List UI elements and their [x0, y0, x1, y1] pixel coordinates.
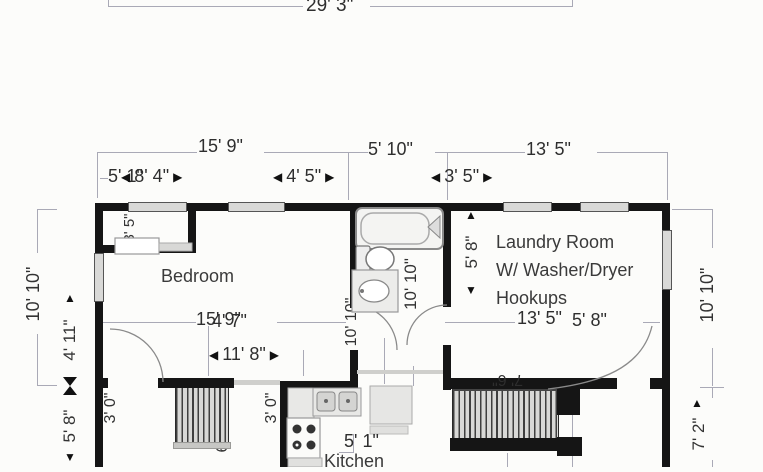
- dim-bedroom-window: 4' 5": [286, 166, 321, 187]
- door-arc-laundry: [548, 326, 652, 389]
- sink-faucet-icon: [360, 289, 364, 293]
- stove-burner-icon: [307, 441, 316, 450]
- dim-laundry-low-sub: 5' 8": [572, 310, 607, 331]
- door-arc-bedroom: [110, 329, 163, 382]
- room-label-kitchen: Kitchen: [324, 451, 384, 472]
- room-label-laundry: Laundry Room W/ Washer/Dryer Hookups: [496, 228, 633, 312]
- stove-burner-icon: [307, 425, 316, 434]
- dim-bowtie-icon: [63, 386, 77, 395]
- arrow-left-icon: ◀: [431, 170, 440, 184]
- dim-kitchen-width: 5' 1": [344, 431, 379, 452]
- closet-rod: [159, 243, 192, 251]
- dim-bedroom-mid-sub: 4' 7": [212, 311, 247, 332]
- dim-bedroom-sub-row: ◀ 8' 4" ▶: [121, 166, 182, 187]
- stove: [287, 418, 320, 458]
- dim-bedroom-lower-row: ◀ 11' 8" ▶: [209, 344, 279, 365]
- arrow-up-icon: ▲: [64, 291, 76, 305]
- arrow-left-icon: ◀: [121, 170, 130, 184]
- arrow-up-icon: ▲: [465, 208, 477, 222]
- dim-bowtie-icon: [63, 377, 77, 386]
- arrow-down-icon: ▼: [465, 283, 477, 297]
- dim-overall-width: 29' 3": [306, 0, 353, 17]
- laundry-line-3: Hookups: [496, 284, 633, 312]
- kitchen-lower-counter: [288, 458, 322, 467]
- arrow-left-icon: ◀: [209, 348, 218, 362]
- sink-faucet-icon: [346, 399, 350, 403]
- dim-bedroom-sub: 8' 4": [134, 166, 169, 187]
- dim-laundry-top: 13' 5": [526, 139, 571, 160]
- laundry-line-1: Laundry Room: [496, 228, 633, 256]
- toilet-bowl: [366, 247, 394, 271]
- dim-bedroom-top: 15' 9": [198, 136, 243, 157]
- dim-bedroom-lower: 11' 8": [222, 344, 266, 365]
- fixtures-layer: [0, 0, 763, 467]
- laundry-line-2: W/ Washer/Dryer: [496, 256, 633, 284]
- closet-shelf: [115, 238, 159, 254]
- arrow-left-icon: ◀: [273, 170, 282, 184]
- dim-stairs-top: 7' 6": [492, 370, 523, 388]
- dim-laundry-sub-row: ◀ 3' 5" ▶: [431, 166, 492, 187]
- door-arc-hall: [407, 305, 447, 345]
- room-label-bedroom: Bedroom: [161, 266, 234, 287]
- arrow-up-icon: ▲: [691, 396, 703, 410]
- sink-faucet-icon: [324, 399, 328, 403]
- dim-bedroom-window-row: ◀ 4' 5" ▶: [273, 166, 334, 187]
- floor-plan: 10' 10" 4' 11" 5' 8" 3' 0" 3' 0" 3' 5" 1…: [0, 0, 763, 467]
- arrow-right-icon: ▶: [173, 170, 182, 184]
- arrow-down-icon: ▼: [64, 450, 76, 464]
- dim-bath-top: 5' 10": [368, 139, 413, 160]
- kitchen-corner-counter: [288, 388, 314, 418]
- stove-burner-icon: [293, 425, 302, 434]
- arrow-right-icon: ▶: [483, 170, 492, 184]
- refrigerator: [370, 386, 412, 424]
- arrow-right-icon: ▶: [270, 348, 279, 362]
- stove-burner-center: [296, 444, 299, 447]
- dim-laundry-sub: 3' 5": [444, 166, 479, 187]
- arrow-right-icon: ▶: [325, 170, 334, 184]
